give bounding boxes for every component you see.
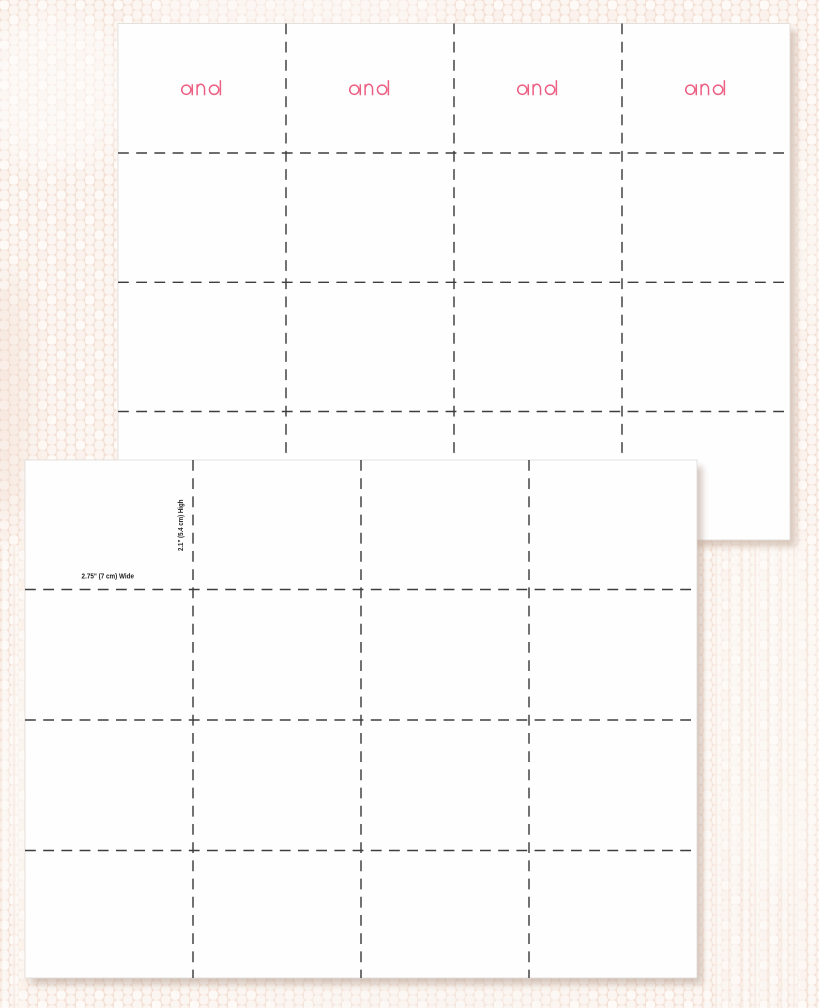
svg-text:2.75" (7 cm) Wide: 2.75" (7 cm) Wide xyxy=(82,572,135,581)
svg-text:2.1" (5.4 cm) High: 2.1" (5.4 cm) High xyxy=(176,500,185,552)
